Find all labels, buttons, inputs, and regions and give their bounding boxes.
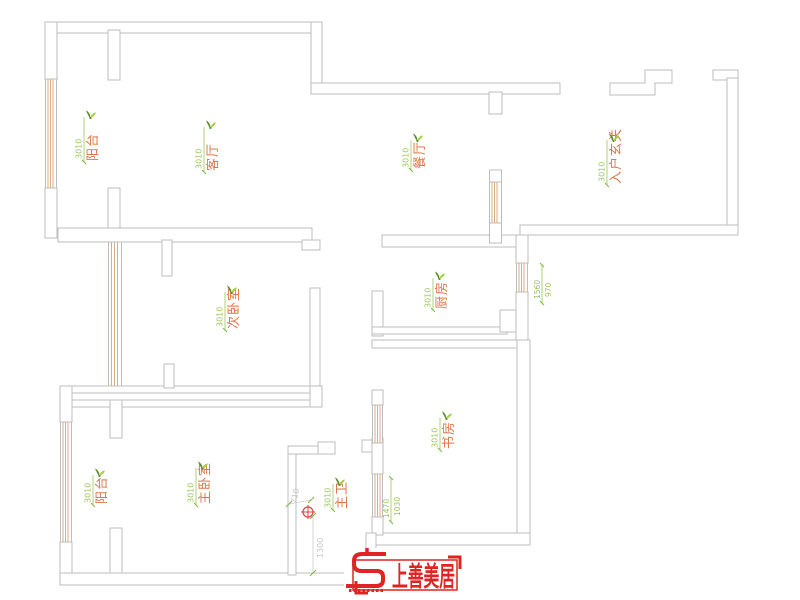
- bath-height-dim: 1300: [316, 538, 325, 558]
- dim-value: 1030: [393, 497, 402, 516]
- room-labels: 3010 阳台 3010 客厅 3010 餐厅 3010 入户玄关 3010 次…: [75, 111, 625, 513]
- room-dim: 3010: [598, 162, 607, 182]
- window-dining-partition: [490, 170, 502, 243]
- room-dim: 3010: [187, 483, 196, 503]
- entry-door-step: [610, 70, 672, 95]
- room-label-second-bedroom: 3010 次卧室: [216, 287, 243, 332]
- room-dim: 3010: [324, 488, 333, 508]
- room-name: 阳台: [86, 133, 101, 161]
- dim-value: 1470: [382, 499, 391, 518]
- plant-icon: [86, 111, 96, 120]
- room-dim: 3010: [195, 149, 204, 169]
- plant-icon: [442, 412, 452, 421]
- plant-icon: [413, 134, 423, 143]
- room-name: 客厅: [205, 143, 221, 171]
- window-balcony-top: [46, 79, 57, 188]
- room-name: 主卧室: [197, 462, 213, 504]
- room-label-master-bath: 3010 主卫: [324, 481, 351, 512]
- dim-value: 1560: [533, 280, 542, 299]
- dim-value: 970: [544, 282, 553, 297]
- windows: [46, 79, 528, 542]
- brand-name: 上善美居: [392, 561, 455, 593]
- room-label-balcony-top: 3010 阳台: [75, 117, 102, 164]
- window-balcony-bottom: [61, 422, 72, 542]
- room-label-living-room: 3010 客厅: [195, 127, 222, 174]
- room-name: 书房: [441, 421, 457, 449]
- room-dim: 3010: [84, 483, 93, 503]
- room-name: 餐厅: [412, 141, 428, 169]
- room-label-study: 3010 书房: [431, 418, 458, 452]
- room-name: 主卫: [335, 481, 350, 509]
- room-label-kitchen: 3010 厨房: [424, 278, 451, 312]
- study-window-dim: 1470 1030: [382, 476, 402, 524]
- window-study-upper: [373, 405, 383, 443]
- room-name: 厨房: [434, 281, 450, 309]
- plant-icon: [435, 272, 445, 281]
- floor-plan: 3010 阳台 3010 客厅 3010 餐厅 3010 入户玄关 3010 次…: [0, 0, 800, 600]
- room-name: 阳台: [95, 476, 110, 504]
- window-kitchen: [517, 263, 528, 292]
- brand-logo: 上善美居: [344, 548, 460, 594]
- window-study-lower: [373, 474, 383, 517]
- room-label-master-bedroom: 3010 主卧室: [187, 462, 214, 507]
- plant-icon: [206, 121, 216, 130]
- plant-icon: [95, 469, 105, 478]
- room-dim: 3010: [216, 307, 225, 327]
- room-dim: 3010: [431, 428, 440, 448]
- window-second-bedroom: [109, 242, 122, 386]
- room-label-dining-room: 3010 餐厅: [402, 140, 429, 172]
- room-dim: 3010: [424, 288, 433, 308]
- room-label-balcony-bottom: 3010 阳台: [84, 475, 111, 507]
- room-dim: 3010: [75, 139, 84, 159]
- room-name: 次卧室: [226, 287, 242, 329]
- room-dim: 3010: [402, 148, 411, 168]
- kitchen-window-dim: 1560 970: [533, 263, 553, 305]
- walls: [45, 22, 738, 585]
